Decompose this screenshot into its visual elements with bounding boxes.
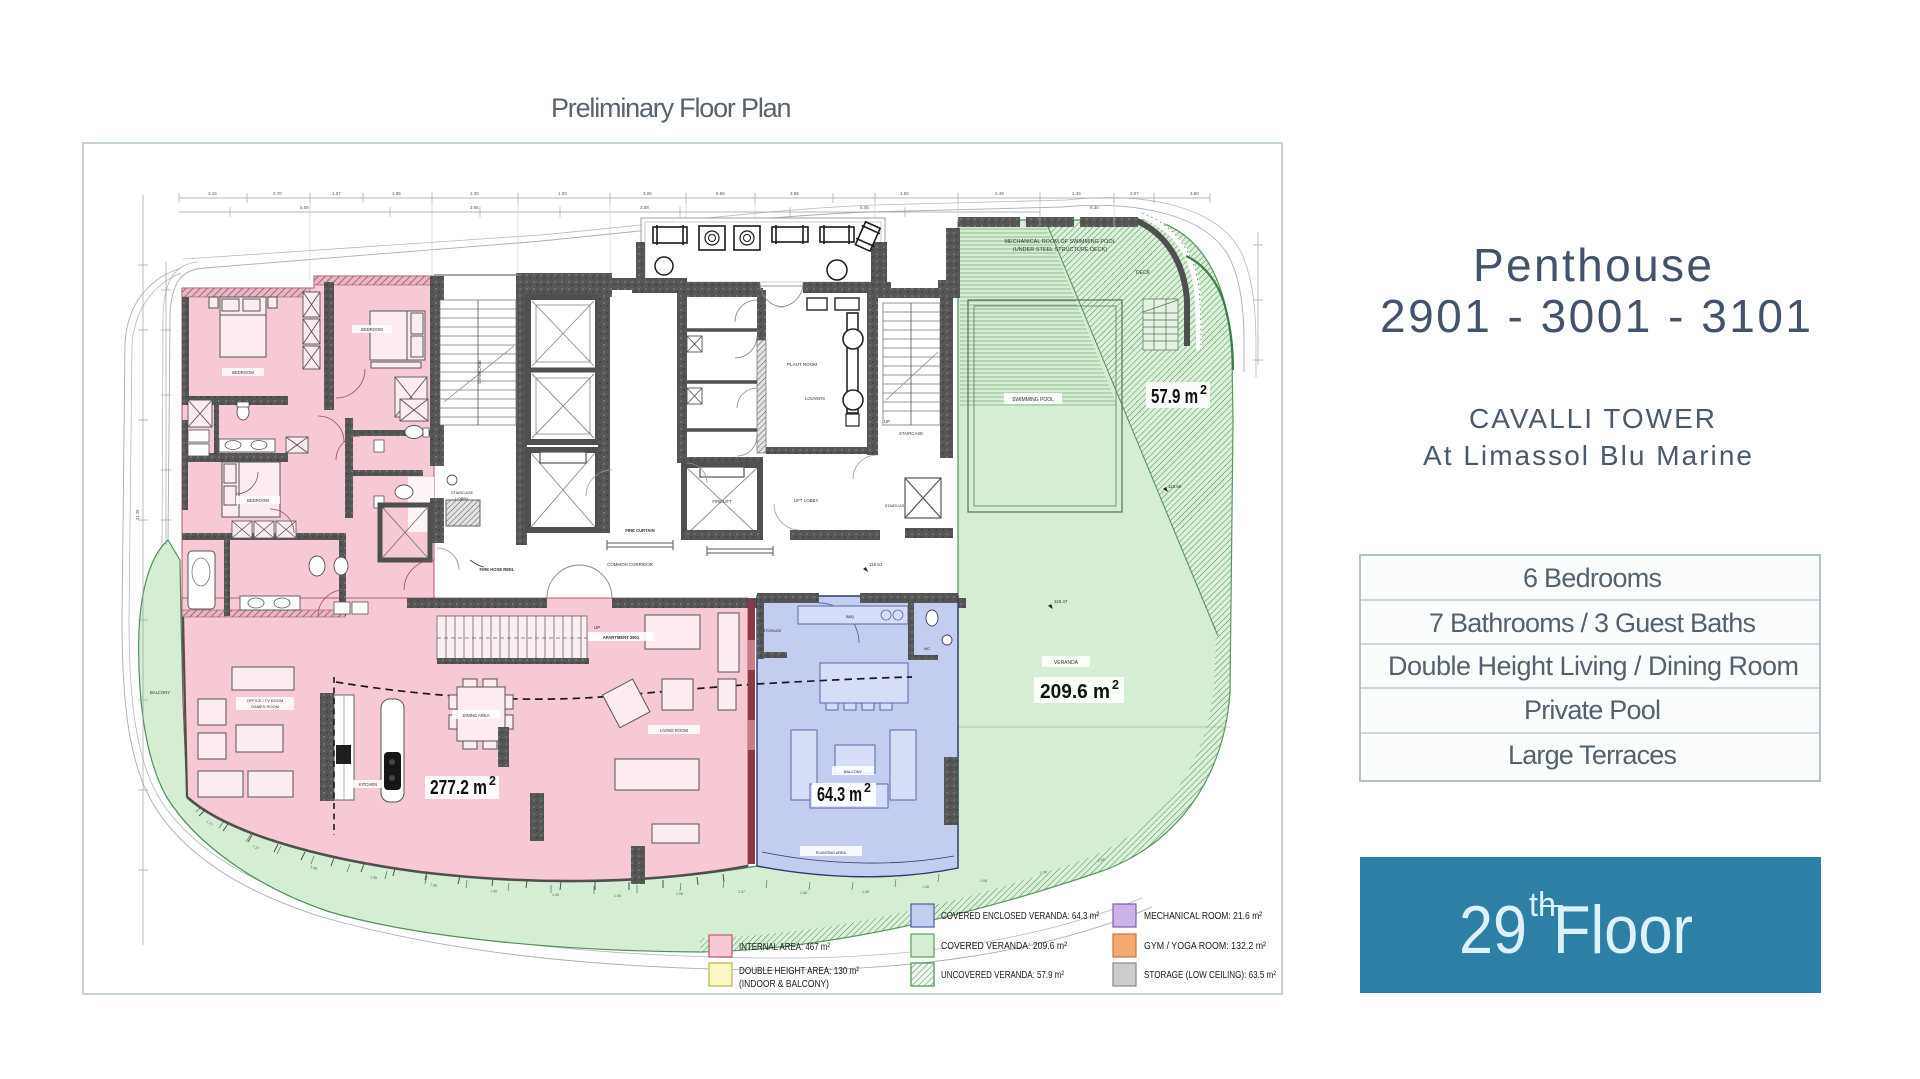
svg-text:57.9 m: 57.9 m: [1151, 386, 1198, 408]
svg-text:1.45: 1.45: [1072, 191, 1081, 196]
svg-text:277.2 m: 277.2 m: [430, 777, 487, 799]
svg-text:3.60: 3.60: [1190, 191, 1199, 196]
svg-text:6 Bedrooms: 6 Bedrooms: [1523, 563, 1663, 593]
svg-text:1.08: 1.08: [922, 885, 929, 889]
svg-text:FIRE HOSE REEL: FIRE HOSE REEL: [480, 567, 515, 572]
svg-text:1.08: 1.08: [490, 889, 497, 893]
svg-text:3.65: 3.65: [790, 191, 799, 196]
svg-text:64.3 m: 64.3 m: [817, 784, 862, 806]
svg-text:2: 2: [489, 774, 496, 788]
svg-text:7 Bathrooms / 3 Guest Baths: 7 Bathrooms / 3 Guest Baths: [1429, 608, 1757, 638]
svg-text:BEDROOM: BEDROOM: [232, 370, 254, 375]
svg-text:DOUBLE HEIGHT AREA: 130 m²: DOUBLE HEIGHT AREA: 130 m²: [739, 966, 860, 977]
svg-text:(INDOOR & BALCONY): (INDOOR & BALCONY): [739, 979, 829, 990]
svg-text:(UNDER STEEL STRUCTURE DECK): (UNDER STEEL STRUCTURE DECK): [1013, 247, 1107, 253]
svg-text:1.95: 1.95: [392, 191, 401, 196]
svg-text:1.00: 1.00: [558, 191, 567, 196]
svg-text:Penthouse: Penthouse: [1473, 239, 1715, 291]
svg-text:1.08: 1.08: [614, 894, 621, 898]
svg-text:SWIMMING POOL: SWIMMING POOL: [1012, 397, 1054, 403]
svg-text:2901 - 3001 - 3101: 2901 - 3001 - 3101: [1380, 290, 1814, 342]
svg-text:LOUVERS: LOUVERS: [805, 396, 825, 401]
svg-text:1.07: 1.07: [738, 890, 745, 894]
svg-text:BALCONY: BALCONY: [150, 690, 170, 695]
svg-text:1.08: 1.08: [676, 892, 683, 896]
svg-text:Private Pool: Private Pool: [1524, 695, 1662, 725]
svg-text:UP: UP: [594, 625, 600, 630]
svg-text:1.08: 1.08: [980, 879, 987, 883]
svg-text:5.45: 5.45: [860, 205, 869, 210]
svg-text:BEDROOM: BEDROOM: [361, 327, 383, 332]
svg-text:Double Height Living / Dining: Double Height Living / Dining Room: [1388, 651, 1800, 681]
svg-text:0.70: 0.70: [273, 191, 282, 196]
svg-text:COMMON CORRIDOR: COMMON CORRIDOR: [607, 562, 653, 567]
svg-text:LIVING ROOM: LIVING ROOM: [660, 728, 688, 733]
svg-text:VERANDA: VERANDA: [1054, 660, 1079, 666]
svg-text:3.15: 3.15: [208, 191, 217, 196]
svg-text:WC: WC: [924, 647, 930, 651]
svg-text:At Limassol Blu Marine: At Limassol Blu Marine: [1423, 440, 1753, 471]
svg-text:UP: UP: [884, 419, 890, 424]
svg-text:FIRE LIFT: FIRE LIFT: [712, 499, 732, 504]
svg-text:2.30: 2.30: [470, 191, 479, 196]
svg-text:FIRE CURTAIN: FIRE CURTAIN: [625, 528, 654, 533]
svg-text:COVERED ENCLOSED VERANDA: 64.3: COVERED ENCLOSED VERANDA: 64.3 m²: [941, 911, 1100, 922]
svg-text:116.59: 116.59: [1168, 484, 1182, 489]
svg-text:BEDROOM: BEDROOM: [247, 498, 269, 503]
svg-text:COVERED VERANDA: 209.6 m²: COVERED VERANDA: 209.6 m²: [941, 941, 1068, 952]
svg-text:1.08: 1.08: [862, 890, 869, 894]
svg-text:MECHANICAL ROOM: 21.6 m²: MECHANICAL ROOM: 21.6 m²: [1144, 911, 1263, 922]
svg-text:5.08: 5.08: [300, 205, 309, 210]
svg-text:7.98: 7.98: [430, 883, 437, 888]
svg-text:PLANTING AREA: PLANTING AREA: [816, 851, 847, 855]
svg-text:1.08: 1.08: [1040, 870, 1047, 875]
svg-text:3.65: 3.65: [470, 205, 479, 210]
svg-text:DECK: DECK: [1136, 270, 1151, 276]
svg-text:STAIRCASE: STAIRCASE: [451, 490, 474, 495]
svg-text:PLANT ROOM: PLANT ROOM: [787, 362, 817, 367]
svg-text:STORAGE (LOW CEILING): 63.5 m²: STORAGE (LOW CEILING): 63.5 m²: [1144, 970, 1277, 981]
svg-text:UNCOVERED VERANDA: 57.9 m²: UNCOVERED VERANDA: 57.9 m²: [941, 970, 1065, 981]
svg-text:CAVALLI TOWER: CAVALLI TOWER: [1469, 403, 1717, 434]
svg-text:Preliminary Floor Plan: Preliminary Floor Plan: [551, 93, 793, 123]
svg-text:STORAGE: STORAGE: [763, 629, 782, 633]
svg-text:LIFT LOBBY: LIFT LOBBY: [794, 498, 819, 503]
svg-text:2.48: 2.48: [995, 191, 1004, 196]
svg-text:GYM / YOGA ROOM: 132.2 m²: GYM / YOGA ROOM: 132.2 m²: [1144, 941, 1267, 952]
svg-text:KITCHEN: KITCHEN: [359, 782, 377, 787]
svg-text:APARTMENT 2901: APARTMENT 2901: [603, 635, 640, 640]
svg-text:2.07: 2.07: [1130, 191, 1139, 196]
svg-text:2: 2: [864, 781, 871, 795]
svg-text:3.08: 3.08: [640, 205, 649, 210]
svg-text:2: 2: [1112, 678, 1119, 692]
svg-text:1.08: 1.08: [800, 891, 807, 895]
svg-text:118.51: 118.51: [869, 562, 883, 567]
svg-text:Floor: Floor: [1553, 892, 1693, 968]
svg-text:8.30: 8.30: [1090, 205, 1099, 210]
svg-text:9.95: 9.95: [716, 191, 725, 196]
svg-text:1.08: 1.08: [552, 893, 559, 897]
svg-text:209.6 m: 209.6 m: [1040, 681, 1110, 703]
svg-text:1.07: 1.07: [332, 191, 341, 196]
svg-text:INTERNAL AREA: 467 m²: INTERNAL AREA: 467 m²: [739, 942, 831, 953]
svg-text:GAMES ROOM: GAMES ROOM: [251, 704, 279, 709]
svg-text:2: 2: [1200, 383, 1207, 397]
svg-text:21.25: 21.25: [135, 509, 140, 520]
svg-text:OFFICE / TV ROOM: OFFICE / TV ROOM: [247, 698, 284, 703]
svg-text:BBQ: BBQ: [846, 615, 854, 619]
svg-text:Large Terraces: Large Terraces: [1508, 740, 1678, 770]
svg-text:29: 29: [1459, 892, 1527, 968]
svg-text:DINING AREA: DINING AREA: [463, 713, 490, 718]
svg-text:MECHANICAL ROOM OF SWIMMING PO: MECHANICAL ROOM OF SWIMMING POOL: [1004, 239, 1115, 245]
svg-text:BALCONY: BALCONY: [844, 770, 863, 774]
svg-text:STAIRCASE: STAIRCASE: [477, 360, 482, 384]
svg-text:1.50: 1.50: [900, 191, 909, 196]
svg-text:3.05: 3.05: [643, 191, 652, 196]
svg-text:STAIRCASE: STAIRCASE: [899, 431, 923, 436]
svg-text:118.47: 118.47: [1054, 599, 1068, 604]
